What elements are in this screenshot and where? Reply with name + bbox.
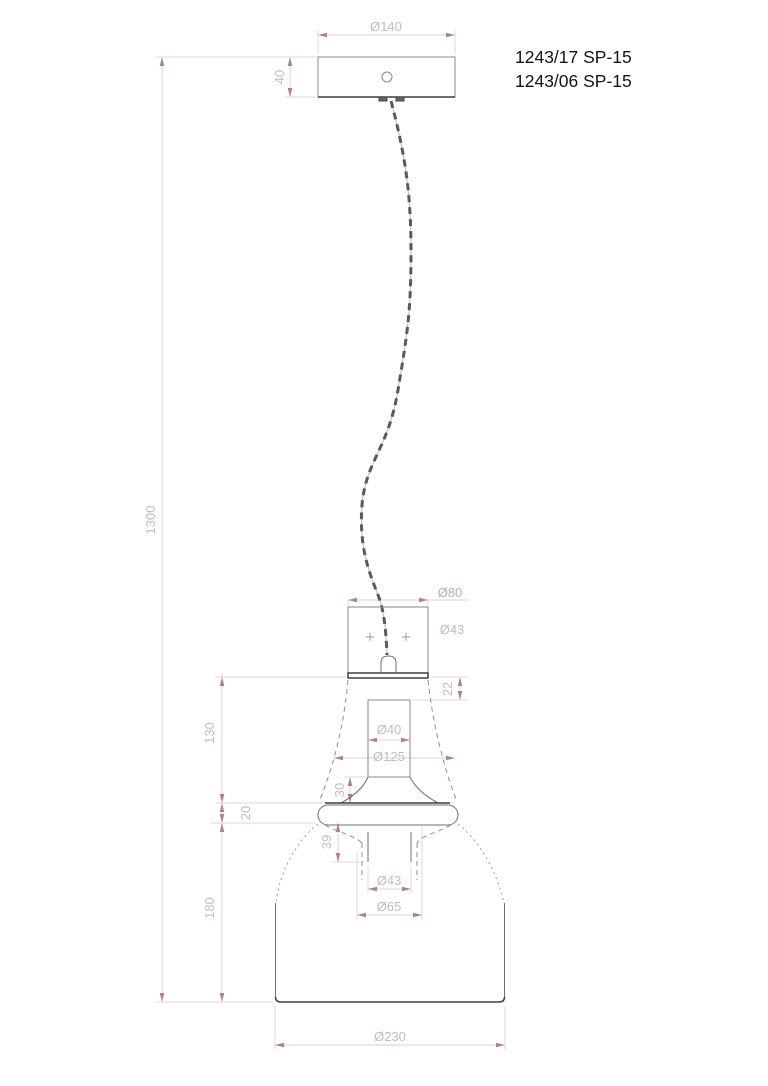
canopy-body <box>318 57 455 97</box>
arrowhead <box>348 777 353 786</box>
arrowhead <box>160 993 165 1002</box>
rim-ring <box>318 805 458 825</box>
strain-relief-left <box>379 97 387 101</box>
dimension-labels: Ø140 40 1300 Ø80 Ø43 22 Ø40 Ø125 130 20 … <box>143 19 464 1044</box>
arrowhead <box>334 756 343 761</box>
arrowhead <box>288 57 293 66</box>
arrowhead <box>419 598 428 603</box>
dim-holder-inner: Ø43 <box>440 622 465 637</box>
model-number-1: 1243/17 SP-15 <box>515 47 632 67</box>
dim-bell-height: 130 <box>202 722 217 744</box>
arrowhead <box>357 913 366 918</box>
arrowhead <box>220 823 225 832</box>
dim-neck-height: 39 <box>319 835 334 849</box>
arrowhead <box>336 853 341 862</box>
dim-bell-diameter: Ø125 <box>373 749 405 764</box>
dim-shade-diameter: Ø230 <box>374 1029 406 1044</box>
holder-housing <box>348 607 428 673</box>
holder-plate <box>348 673 428 678</box>
dim-canopy-height: 40 <box>272 70 287 84</box>
extension-lines <box>155 30 505 1050</box>
arrowhead <box>458 691 463 700</box>
shade-bottom <box>276 997 505 1002</box>
dim-socket-tube: Ø40 <box>377 722 402 737</box>
arrowhead <box>446 756 455 761</box>
arrowhead <box>496 1043 505 1048</box>
dim-neck-outer: Ø65 <box>377 899 402 914</box>
dim-neck-inner: Ø43 <box>377 873 402 888</box>
ceiling-canopy <box>318 57 455 101</box>
arrowhead <box>368 887 377 892</box>
dim-socket-to-rim: 30 <box>332 783 347 797</box>
canopy-mount-hole <box>382 72 392 82</box>
suspension-holder <box>348 607 428 678</box>
arrowhead <box>368 738 377 743</box>
dim-shade-height: 180 <box>202 897 217 919</box>
arrowhead <box>413 913 422 918</box>
dim-canopy-diameter: Ø140 <box>370 19 402 34</box>
arrowhead <box>401 738 410 743</box>
strain-relief-right <box>396 97 404 101</box>
arrowhead <box>275 1043 284 1048</box>
arrowhead <box>458 677 463 686</box>
arrowhead <box>220 803 225 812</box>
dim-holder-offset: 22 <box>440 682 455 696</box>
arrowhead <box>318 33 327 38</box>
dim-rim-height: 20 <box>238 806 253 820</box>
arrowhead <box>446 33 455 38</box>
technical-drawing: Ø140 40 1300 Ø80 Ø43 22 Ø40 Ø125 130 20 … <box>0 0 768 1086</box>
arrowhead <box>220 677 225 686</box>
arrowhead <box>220 794 225 803</box>
arrowhead <box>288 88 293 97</box>
center-marks <box>366 633 410 641</box>
cable-grommet <box>381 656 396 673</box>
product-labels: 1243/17 SP-15 1243/06 SP-15 <box>515 47 632 91</box>
dimension-lines <box>162 35 505 1045</box>
dim-drop-length: 1300 <box>143 506 158 535</box>
model-number-2: 1243/06 SP-15 <box>515 71 632 91</box>
dim-holder-width: Ø80 <box>438 585 463 600</box>
arrowhead <box>402 887 411 892</box>
arrowhead <box>220 814 225 823</box>
twisted-cable <box>361 101 411 655</box>
arrowhead <box>348 598 357 603</box>
arrowhead <box>220 993 225 1002</box>
arrowhead <box>160 57 165 66</box>
dimension-arrows <box>160 33 505 1048</box>
drawing-page: Ø140 40 1300 Ø80 Ø43 22 Ø40 Ø125 130 20 … <box>0 0 768 1086</box>
